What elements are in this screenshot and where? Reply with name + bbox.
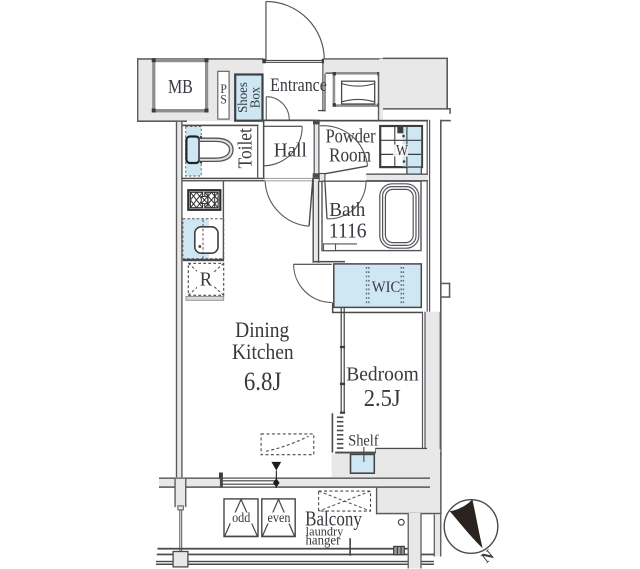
svg-text:Toilet: Toilet bbox=[234, 127, 256, 168]
svg-text:Bedroom: Bedroom bbox=[346, 363, 419, 386]
svg-text:Entrance: Entrance bbox=[270, 74, 327, 96]
svg-text:W: W bbox=[396, 142, 408, 160]
svg-text:2.5J: 2.5J bbox=[364, 385, 401, 412]
svg-text:Dining: Dining bbox=[235, 318, 289, 342]
svg-text:Bath: Bath bbox=[329, 198, 365, 221]
svg-text:Hall: Hall bbox=[274, 140, 308, 161]
svg-text:even: even bbox=[268, 510, 291, 525]
svg-text:odd: odd bbox=[232, 510, 251, 525]
svg-text:1116: 1116 bbox=[329, 220, 367, 243]
svg-text:Box: Box bbox=[247, 87, 263, 109]
svg-text:MB: MB bbox=[168, 75, 193, 97]
svg-text:Kitchen: Kitchen bbox=[232, 340, 294, 364]
svg-text:WIC: WIC bbox=[372, 278, 401, 296]
svg-text:R: R bbox=[200, 269, 213, 291]
svg-text:S: S bbox=[220, 92, 227, 107]
svg-text:Shelf: Shelf bbox=[348, 432, 379, 450]
svg-text:6.8J: 6.8J bbox=[244, 368, 282, 397]
svg-text:hanger: hanger bbox=[305, 532, 340, 547]
